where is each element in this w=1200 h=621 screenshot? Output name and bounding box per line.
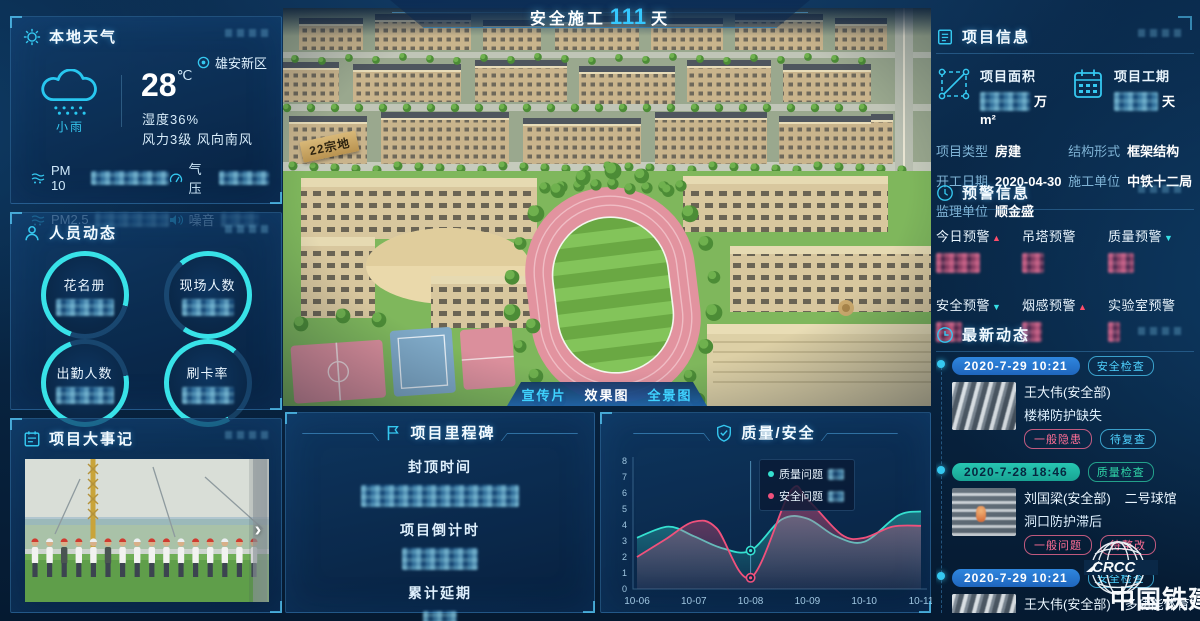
sun-gear-icon <box>23 28 41 46</box>
svg-text:3: 3 <box>622 536 627 546</box>
header-decor <box>1138 29 1182 37</box>
svg-text:4: 4 <box>622 520 627 530</box>
clock-icon <box>936 326 954 344</box>
feed-entry[interactable]: 2020-7-29 10:21安全检查 王大伟(安全部) 楼梯防护缺失 一般隐患… <box>952 356 1194 449</box>
field-structure: 结构形式框架结构 <box>1068 141 1194 160</box>
timeline-dot <box>937 572 945 580</box>
trend-down-icon: ▼ <box>992 302 1001 312</box>
pm10-value-blurred <box>91 171 168 185</box>
feed-entry[interactable]: 2020-7-29 10:21安全检查 王大伟(安全部)多功能体育馆 楼梯防护缺… <box>952 568 1194 613</box>
latest-updates-section: 最新动态 2020-7-29 10:21安全检查 王大伟(安全部) 楼梯防护缺失… <box>936 320 1194 613</box>
view-switcher: 宣传片 效果图 全景图 <box>507 382 707 406</box>
svg-text:10-07: 10-07 <box>681 596 707 607</box>
events-title: 项目大事记 <box>49 428 134 449</box>
field-project-type: 项目类型房建 <box>936 141 1068 160</box>
tooltip-quality-value-blurred <box>828 469 844 480</box>
svg-text:10-11: 10-11 <box>909 596 932 607</box>
entry-tag-status: 待整改 <box>1100 535 1156 555</box>
milestone-title: 项目里程碑 <box>410 422 495 443</box>
svg-text:10-06: 10-06 <box>624 596 650 607</box>
ring-attendance: 出勤人数 <box>41 339 129 427</box>
quality-warnings-value-blurred <box>1108 253 1134 273</box>
svg-text:7: 7 <box>622 472 627 482</box>
entry-person: 王大伟(安全部) <box>1024 594 1111 613</box>
header-decor <box>225 29 269 37</box>
panorama-button[interactable]: 全景图 <box>648 385 693 404</box>
svg-text:10-10: 10-10 <box>851 596 877 607</box>
svg-text:2: 2 <box>622 552 627 562</box>
entry-photo[interactable] <box>952 382 1016 430</box>
quality-safety-chart[interactable]: 01234567810-0610-0710-0810-0910-1010-11 <box>601 413 932 614</box>
entry-issue: 楼梯防护缺失 <box>1024 405 1156 424</box>
ring-onsite: 现场人数 <box>164 251 252 339</box>
entry-date: 2020-7-29 10:21 <box>952 569 1080 587</box>
crane-warnings-value-blurred <box>1022 253 1044 273</box>
svg-text:8: 8 <box>622 456 627 466</box>
entry-category-badge: 质量检查 <box>1088 462 1154 482</box>
entry-category-badge: 安全检查 <box>1088 356 1154 376</box>
topping-time-value-blurred <box>361 485 519 507</box>
personnel-panel: 人员动态 花名册 现场人数 出勤人数 刷卡率 <box>10 212 282 410</box>
delay-value-blurred <box>423 611 457 621</box>
trend-up-icon: ▲ <box>1078 302 1087 312</box>
warning-quality: 质量预警▼ <box>1108 226 1194 273</box>
chart-tooltip: 质量问题 安全问题 <box>759 459 855 511</box>
milestone-delay: 累计延期 <box>408 583 472 621</box>
entry-tag-hazard: 一般隐患 <box>1024 429 1092 449</box>
timeline-dot <box>937 360 945 368</box>
rain-cloud-icon <box>37 69 103 116</box>
entry-tag-status: 待复查 <box>1100 429 1156 449</box>
entry-location: 二号球馆 <box>1125 488 1177 507</box>
entry-issue: 洞口防护滞后 <box>1024 511 1177 530</box>
tooltip-safety-value-blurred <box>828 491 844 502</box>
humidity: 湿度36% <box>142 109 199 128</box>
entry-person: 王大伟(安全部) <box>1024 382 1111 401</box>
weather-condition: 小雨 <box>37 118 103 135</box>
svg-text:10-08: 10-08 <box>738 596 764 607</box>
onsite-value-blurred <box>182 299 234 316</box>
entry-category-badge: 安全检查 <box>1088 568 1154 588</box>
entry-person: 刘国梁(安全部) <box>1024 488 1111 507</box>
duration-value-blurred <box>1114 92 1158 111</box>
location-label: 雄安新区 <box>197 53 267 72</box>
project-events-panel: 项目大事记 › <box>10 418 282 613</box>
pm-icon <box>31 172 45 184</box>
warnings-section: 预警信息 今日预警▲ 吊塔预警 质量预警▼ 安全预警▼ 烟感预警▲ 实验室预警 <box>936 178 1194 316</box>
metric-pm10: PM 10 <box>31 159 169 197</box>
ring-swipe-rate: 刷卡率 <box>164 339 252 427</box>
header-decor <box>225 225 269 233</box>
wind: 风力3级 风向南风 <box>142 129 253 148</box>
flag-icon <box>384 424 402 442</box>
tooltip-safety-row: 安全问题 <box>768 488 846 504</box>
svg-text:5: 5 <box>622 504 627 514</box>
feed-title: 最新动态 <box>962 324 1030 345</box>
stat-area: 项目面积万m² <box>936 66 1060 129</box>
site-3d-view[interactable]: 22宗地 宣传片 效果图 全景图 <box>283 8 931 406</box>
pressure-icon <box>169 172 183 184</box>
trend-up-icon: ▲ <box>992 233 1001 243</box>
svg-text:10-09: 10-09 <box>795 596 821 607</box>
entry-date: 2020-7-28 18:46 <box>952 463 1080 481</box>
dashboard: 安全施工111天 本地天气 雄安新区 小雨 28℃ 湿度36% 风力3级 风向南… <box>0 0 1200 621</box>
milestone-countdown: 项目倒计时 <box>400 520 480 570</box>
event-photo <box>25 459 269 602</box>
ring-roster: 花名册 <box>41 251 129 339</box>
temperature: 28℃ <box>141 67 192 104</box>
tooltip-quality-row: 质量问题 <box>768 466 846 482</box>
svg-text:0: 0 <box>622 584 627 594</box>
calendar-note-icon <box>23 430 41 448</box>
today-warnings-value-blurred <box>936 253 980 273</box>
header-decor <box>225 431 269 439</box>
swipe-rate-value-blurred <box>182 387 234 404</box>
weather-panel: 本地天气 雄安新区 小雨 28℃ 湿度36% 风力3级 风向南风 PM 10 <box>10 16 282 204</box>
warning-crane: 吊塔预警 <box>1022 226 1108 273</box>
countdown-value-blurred <box>402 548 478 570</box>
svg-text:6: 6 <box>622 488 627 498</box>
feed-entry[interactable]: 2020-7-28 18:46质量检查 刘国梁(安全部)二号球馆 洞口防护滞后 … <box>952 462 1194 555</box>
area-measure-icon <box>936 66 972 102</box>
metric-pressure: 气压 <box>169 159 269 197</box>
warning-today: 今日预警▲ <box>936 226 1022 273</box>
warnings-title: 预警信息 <box>962 182 1030 203</box>
entry-tag-hazard: 一般问题 <box>1024 535 1092 555</box>
trend-down-icon: ▼ <box>1164 233 1173 243</box>
milestone-topping-time: 封顶时间 <box>361 457 519 507</box>
svg-text:1: 1 <box>622 568 627 578</box>
timeline-dot <box>937 466 945 474</box>
entry-date: 2020-7-29 10:21 <box>952 357 1080 375</box>
stat-duration: 项目工期天 <box>1070 66 1194 129</box>
document-icon <box>936 28 954 46</box>
quality-safety-panel: 质量/安全 01234567810-0610-0710-0810-0910-10… <box>600 412 931 613</box>
header-decor <box>1138 185 1182 193</box>
render-view-button[interactable]: 效果图 <box>584 385 629 404</box>
pressure-value-blurred <box>219 171 269 185</box>
calendar-icon <box>1070 66 1106 102</box>
project-info-title: 项目信息 <box>962 26 1030 47</box>
attendance-value-blurred <box>56 387 114 404</box>
next-photo-button[interactable]: › <box>249 459 267 602</box>
person-icon <box>23 224 41 242</box>
alert-bell-icon <box>936 184 954 202</box>
entry-location: 多功能体育馆 <box>1125 594 1194 613</box>
milestone-panel: 项目里程碑 封顶时间 项目倒计时 累计延期 <box>285 412 595 613</box>
header-decor <box>1138 327 1182 335</box>
entry-photo[interactable] <box>952 594 1016 613</box>
weather-title: 本地天气 <box>49 26 117 47</box>
project-info-section: 项目信息 项目面积万m² 项目工期天 项目类型房建 结构形式框架结构 开工日期2… <box>936 22 1194 174</box>
area-value-blurred <box>980 92 1030 111</box>
roster-value-blurred <box>56 299 114 316</box>
divider <box>121 75 122 127</box>
entry-photo[interactable] <box>952 488 1016 536</box>
location-pin-icon <box>197 56 210 69</box>
personnel-title: 人员动态 <box>49 222 117 243</box>
promo-video-button[interactable]: 宣传片 <box>521 385 566 404</box>
